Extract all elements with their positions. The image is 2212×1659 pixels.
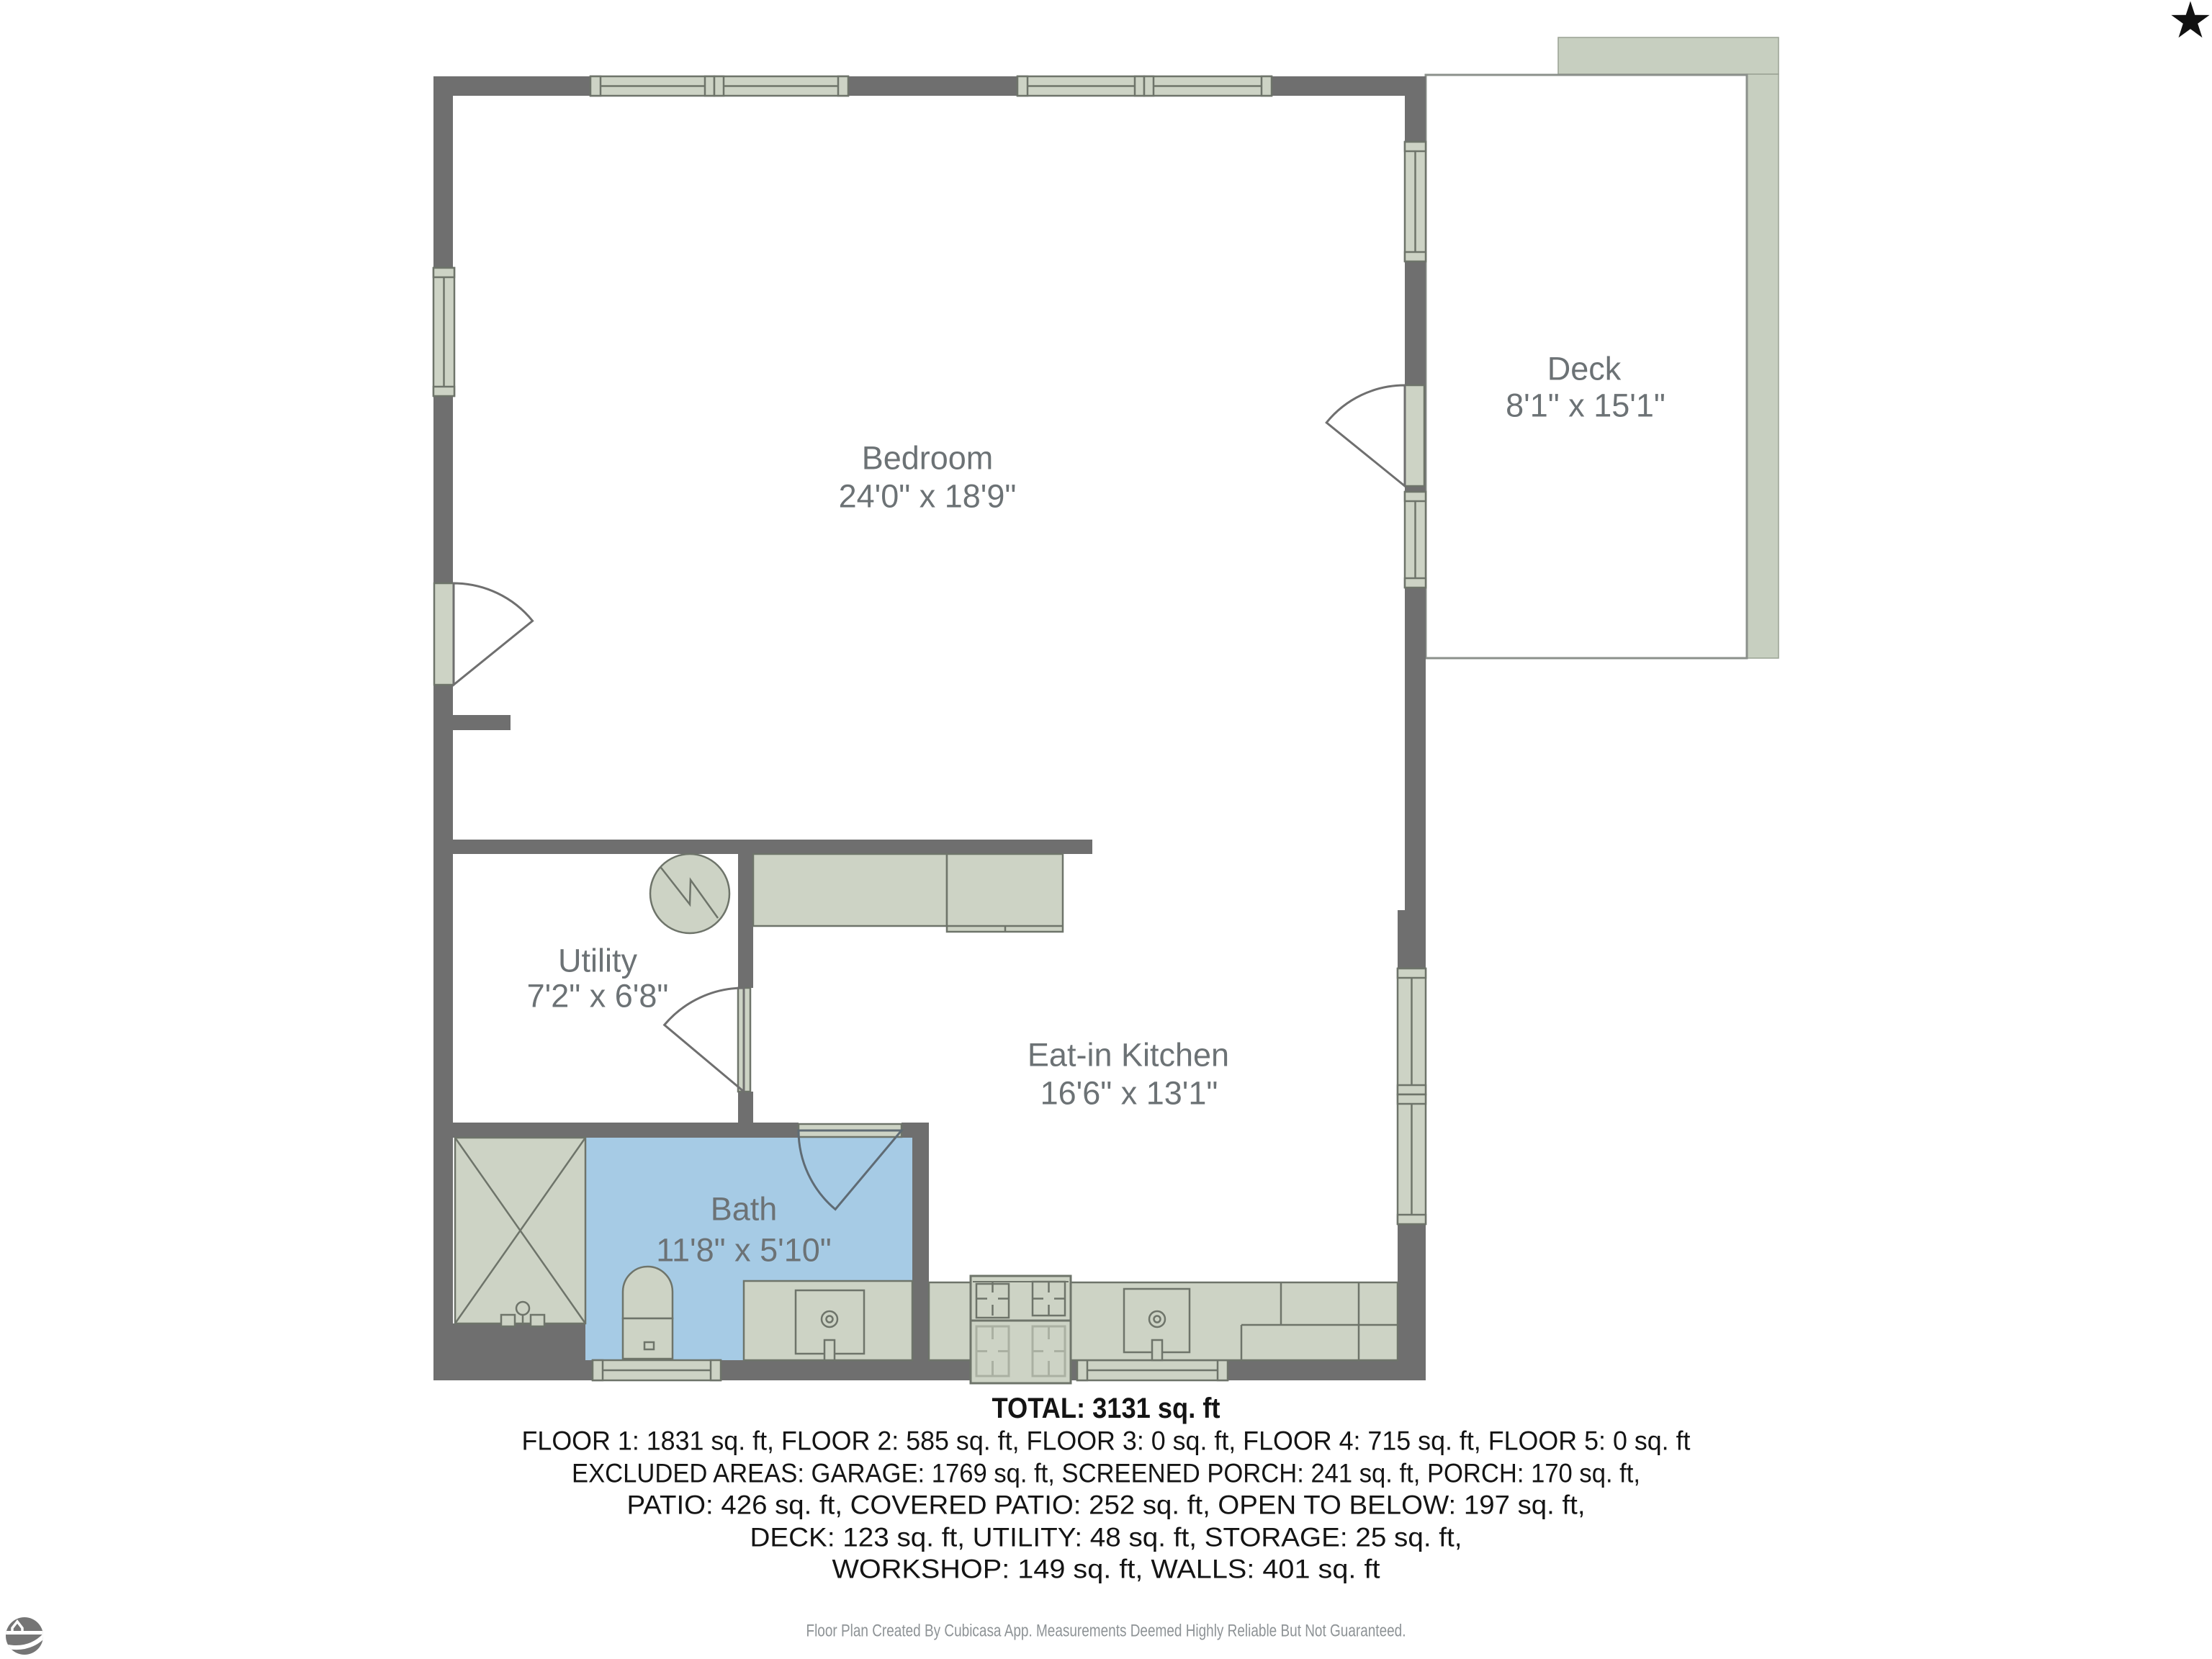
svg-text:7'2" x 6'8": 7'2" x 6'8" [527,978,669,1015]
svg-text:24'0" x 18'9": 24'0" x 18'9" [839,478,1017,515]
svg-text:Floor Plan Created By Cubicasa: Floor Plan Created By Cubicasa App. Meas… [806,1622,1406,1641]
svg-text:WORKSHOP: 149 sq. ft, WALLS: 4: WORKSHOP: 149 sq. ft, WALLS: 401 sq. ft [832,1555,1381,1584]
svg-text:EXCLUDED AREAS: GARAGE: 1769 s: EXCLUDED AREAS: GARAGE: 1769 sq. ft, SCR… [572,1459,1640,1488]
svg-text:Deck: Deck [1547,351,1622,387]
svg-text:DECK: 123 sq. ft, UTILITY: 48: DECK: 123 sq. ft, UTILITY: 48 sq. ft, ST… [750,1523,1462,1552]
svg-text:11'8" x 5'10": 11'8" x 5'10" [656,1232,831,1269]
svg-text:Bath: Bath [711,1191,778,1228]
svg-text:Eat-in Kitchen: Eat-in Kitchen [1028,1037,1229,1074]
svg-text:PATIO: 426 sq. ft, COVERED PAT: PATIO: 426 sq. ft, COVERED PATIO: 252 sq… [627,1491,1586,1520]
svg-text:16'6" x 13'1": 16'6" x 13'1" [1040,1075,1218,1112]
svg-text:FLOOR 1: 1831 sq. ft, FLOOR 2:: FLOOR 1: 1831 sq. ft, FLOOR 2: 585 sq. f… [522,1426,1691,1456]
svg-text:8'1" x 15'1": 8'1" x 15'1" [1506,387,1665,424]
svg-text:TOTAL: 3131 sq. ft: TOTAL: 3131 sq. ft [992,1393,1220,1424]
svg-text:Bedroom: Bedroom [862,440,994,477]
svg-text:Utility: Utility [558,943,637,979]
